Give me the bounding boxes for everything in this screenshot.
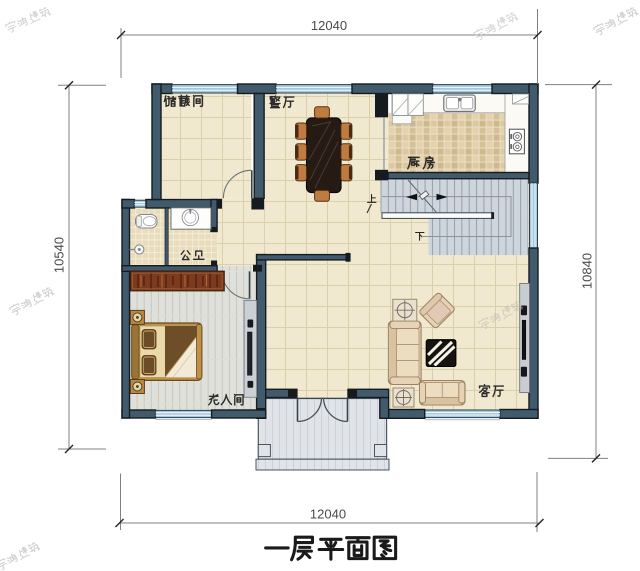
svg-text:10840: 10840 [580, 253, 595, 289]
svg-text:12040: 12040 [311, 18, 347, 33]
svg-text:10540: 10540 [52, 237, 67, 273]
svg-text:12040: 12040 [310, 507, 346, 522]
